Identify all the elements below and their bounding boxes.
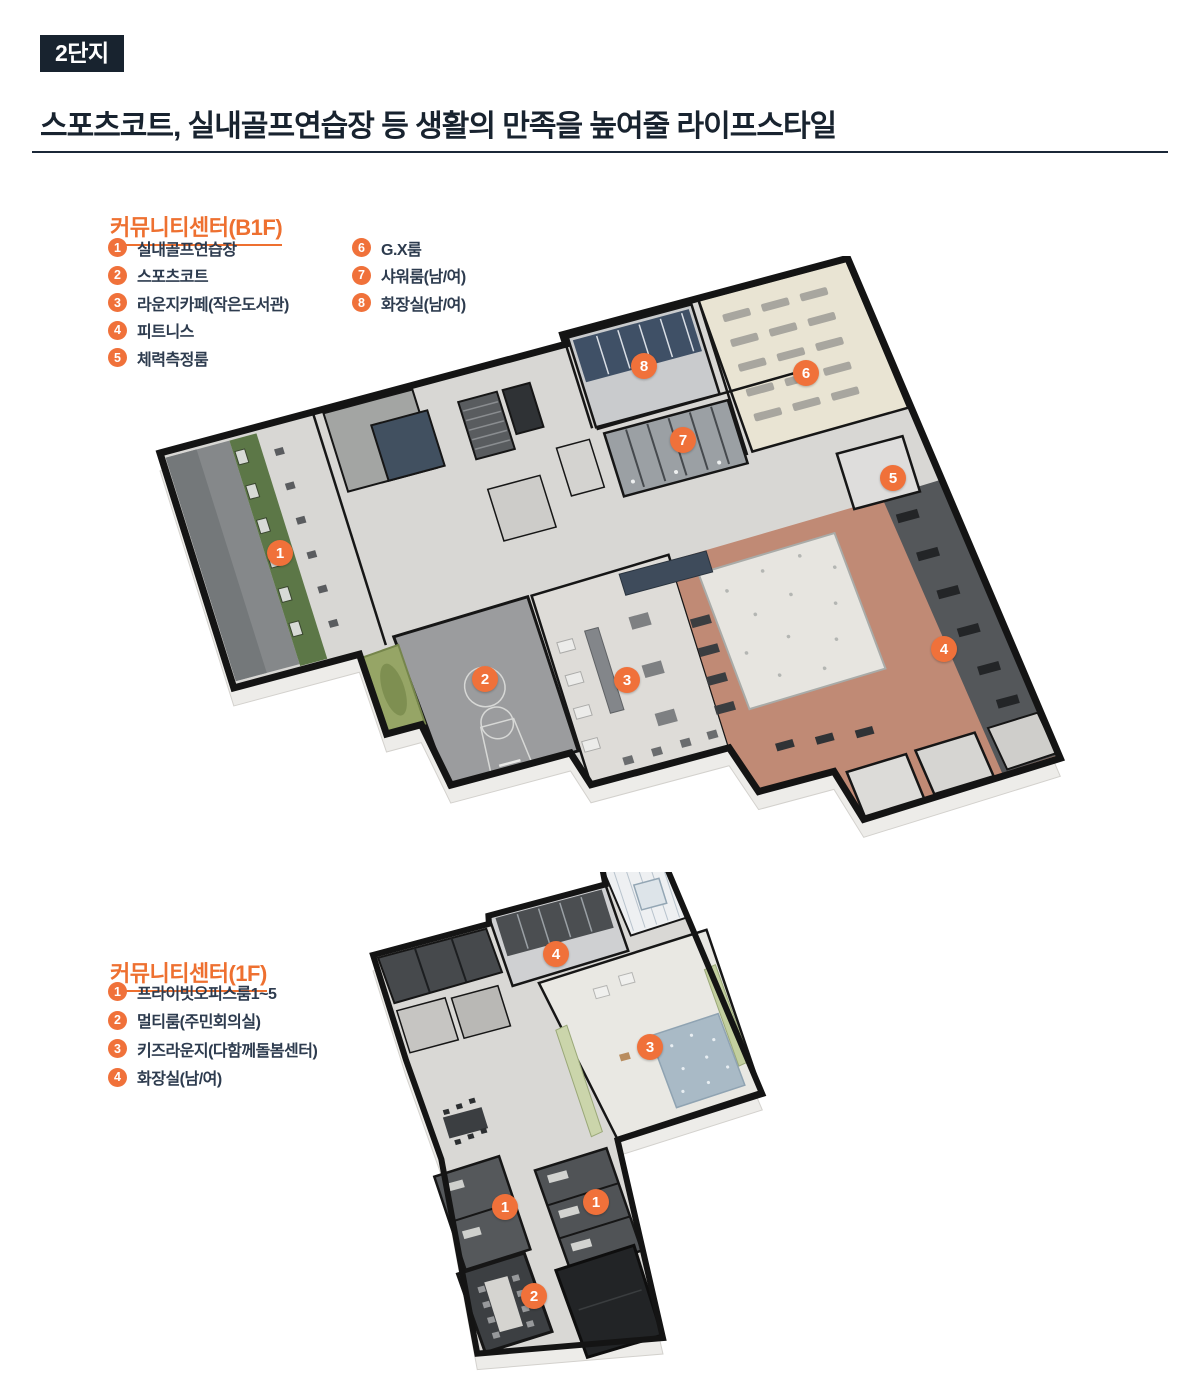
legend-item-number: 2 xyxy=(108,266,127,285)
legend-item: 2멀티룸(주민회의실) xyxy=(108,1011,317,1030)
page-title: 스포츠코트, 실내골프연습장 등 생활의 만족을 높여줄 라이프스타일 xyxy=(40,101,836,145)
header-divider xyxy=(32,151,1168,153)
legend-item-label: 멀티룸(주민회의실) xyxy=(137,1008,260,1032)
b1f-floorplan xyxy=(140,256,1120,881)
f1-floorplan-svg xyxy=(365,872,785,1377)
plan-marker: 8 xyxy=(631,353,657,379)
legend-item-number: 4 xyxy=(108,321,127,340)
plan-marker: 6 xyxy=(793,360,819,386)
plan-marker: 4 xyxy=(931,636,957,662)
legend-item-number: 4 xyxy=(108,1068,127,1087)
f1-floor xyxy=(365,872,785,1377)
legend-item-number: 5 xyxy=(108,348,127,367)
plan-marker: 2 xyxy=(521,1283,547,1309)
plan-marker: 1 xyxy=(492,1194,518,1220)
f1-legend: 1프라이빗오피스룸1~52멀티룸(주민회의실)3키즈라운지(다함께돌봄센터)4화… xyxy=(108,982,317,1096)
f1-floorplan xyxy=(365,872,785,1377)
legend-item: 1실내골프연습장 xyxy=(108,238,352,257)
complex-badge: 2단지 xyxy=(40,35,124,72)
legend-item-label: 화장실(남/여) xyxy=(137,1065,222,1089)
legend-item-number: 2 xyxy=(108,1011,127,1030)
plan-marker: 3 xyxy=(637,1034,663,1060)
plan-marker: 1 xyxy=(267,540,293,566)
legend-item-label: 프라이빗오피스룸1~5 xyxy=(137,980,276,1004)
legend-column: 1프라이빗오피스룸1~52멀티룸(주민회의실)3키즈라운지(다함께돌봄센터)4화… xyxy=(108,982,317,1096)
legend-item: 4화장실(남/여) xyxy=(108,1068,317,1087)
legend-item: 3키즈라운지(다함께돌봄센터) xyxy=(108,1039,317,1058)
legend-item-number: 6 xyxy=(352,238,371,257)
legend-item-number: 3 xyxy=(108,293,127,312)
plan-marker: 7 xyxy=(670,427,696,453)
legend-item-label: 키즈라운지(다함께돌봄센터) xyxy=(137,1037,317,1061)
plan-marker: 2 xyxy=(472,666,498,692)
legend-item-number: 1 xyxy=(108,982,127,1001)
plan-marker: 5 xyxy=(880,465,906,491)
plan-marker: 1 xyxy=(583,1189,609,1215)
legend-item-number: 1 xyxy=(108,238,127,257)
b1f-floorplan-svg xyxy=(140,256,1120,881)
legend-item: 1프라이빗오피스룸1~5 xyxy=(108,982,317,1001)
plan-marker: 4 xyxy=(543,941,569,967)
legend-item-number: 3 xyxy=(108,1039,127,1058)
brochure-page: 2단지 스포츠코트, 실내골프연습장 등 생활의 만족을 높여줄 라이프스타일 … xyxy=(0,0,1200,1400)
legend-item: 6G.X룸 xyxy=(352,238,596,257)
plan-marker: 3 xyxy=(614,667,640,693)
